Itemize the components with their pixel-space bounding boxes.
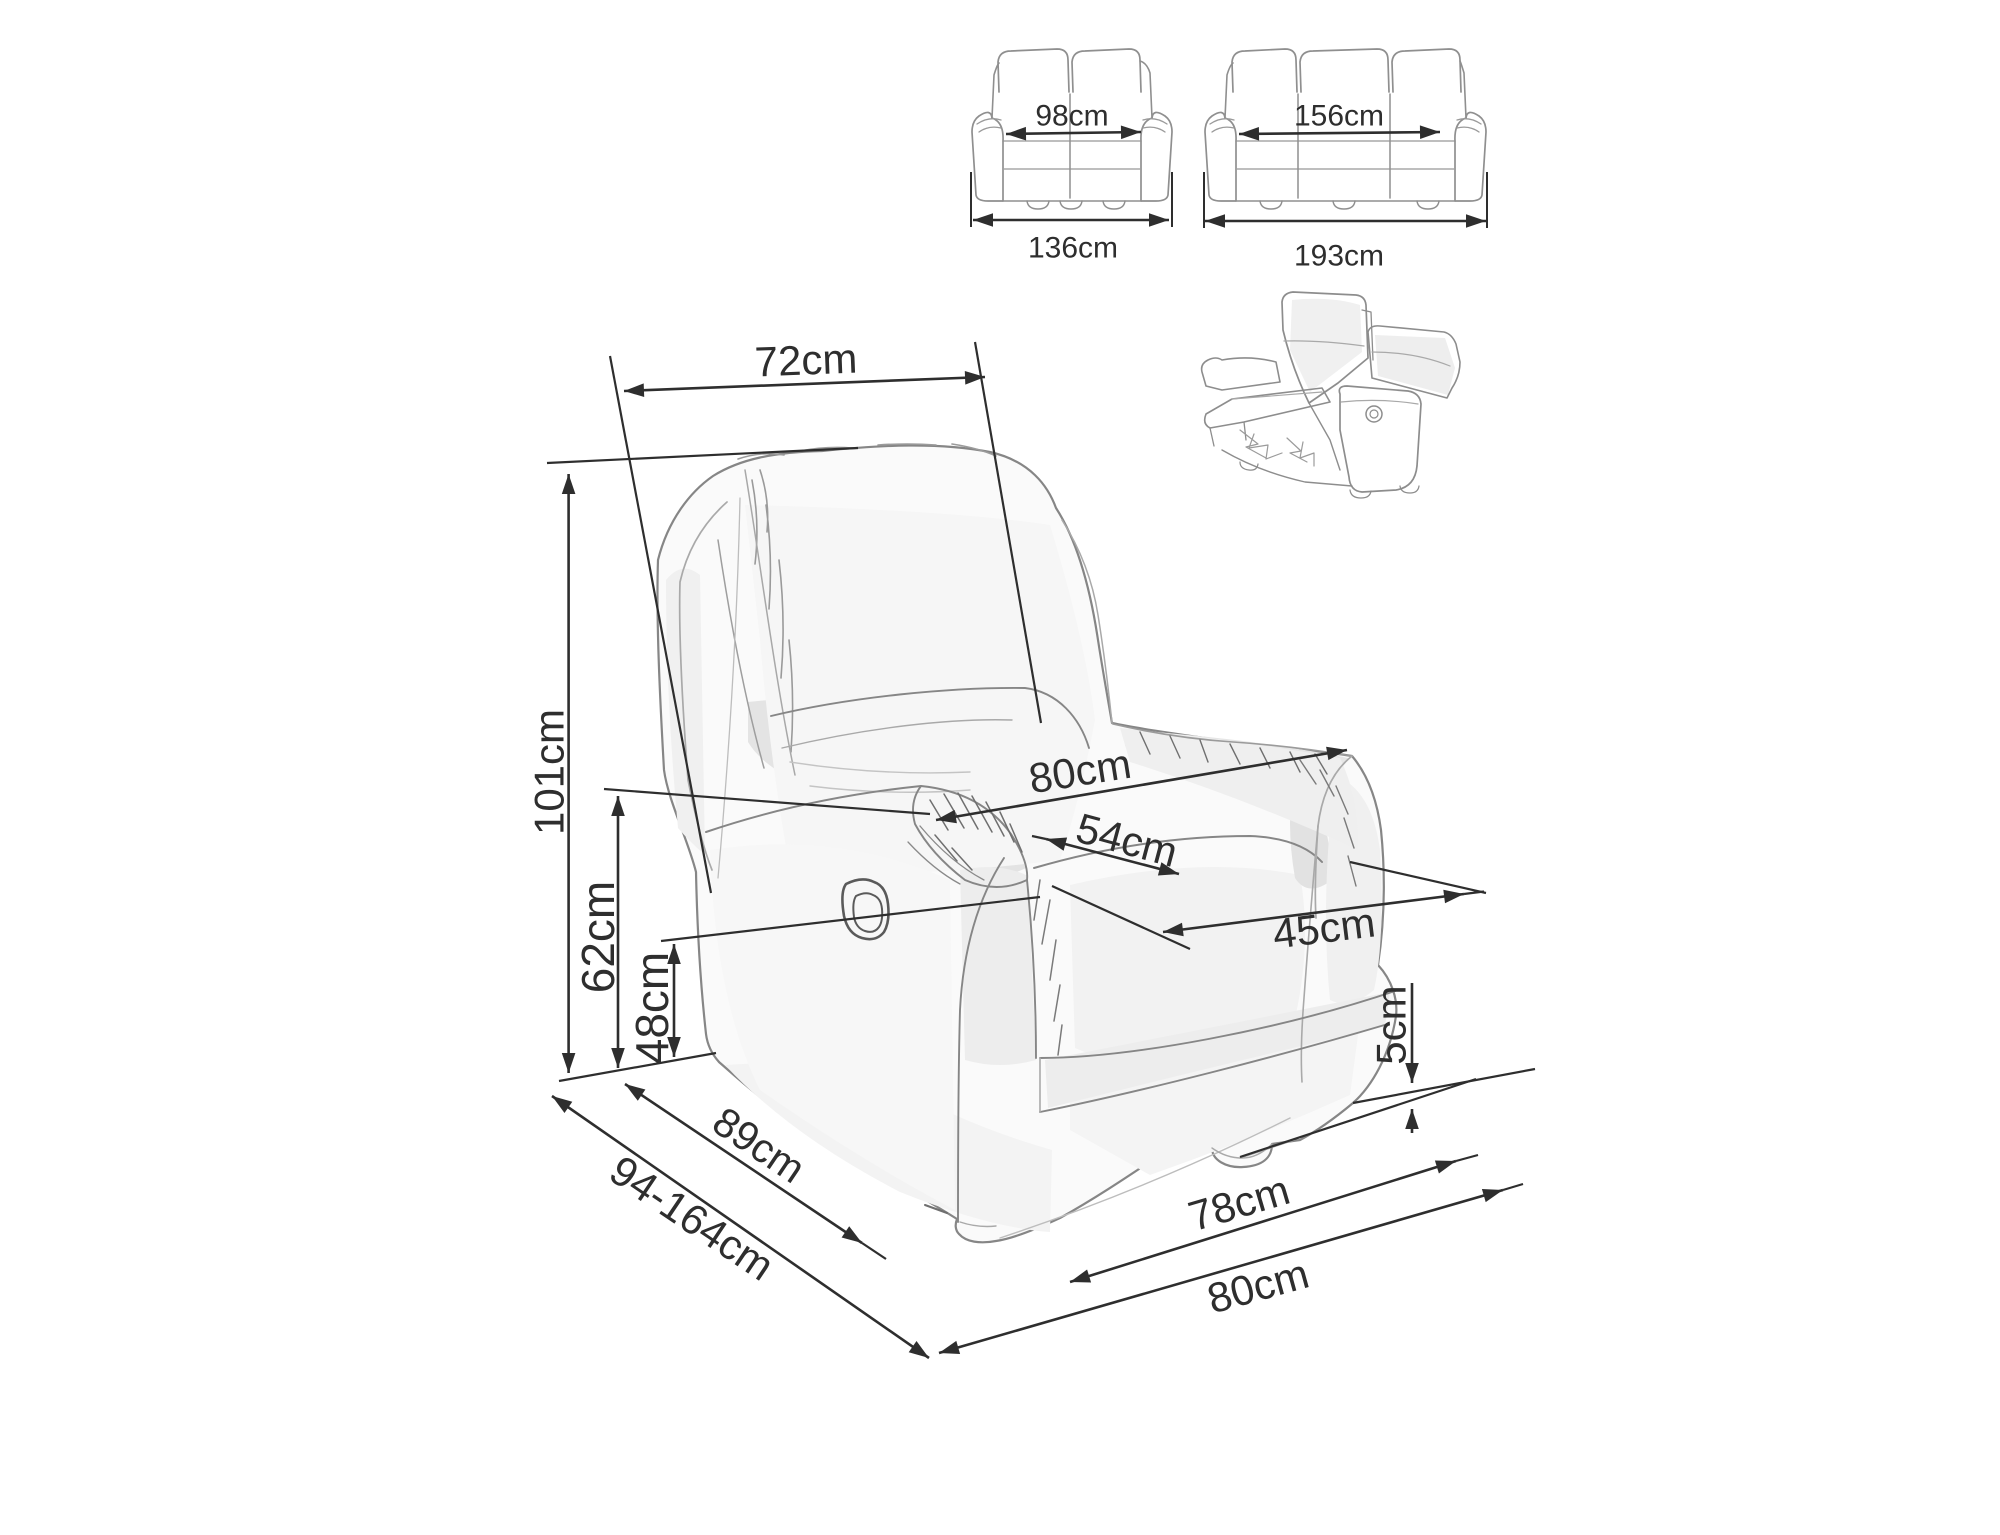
svg-text:98cm: 98cm [1035, 100, 1108, 133]
svg-text:193cm: 193cm [1294, 240, 1384, 273]
svg-text:48cm: 48cm [626, 952, 678, 1064]
svg-text:136cm: 136cm [1028, 232, 1118, 265]
svg-text:101cm: 101cm [526, 709, 573, 835]
svg-text:156cm: 156cm [1294, 100, 1384, 133]
svg-text:5cm: 5cm [1368, 985, 1415, 1064]
svg-text:72cm: 72cm [754, 335, 858, 386]
svg-text:62cm: 62cm [572, 881, 624, 993]
